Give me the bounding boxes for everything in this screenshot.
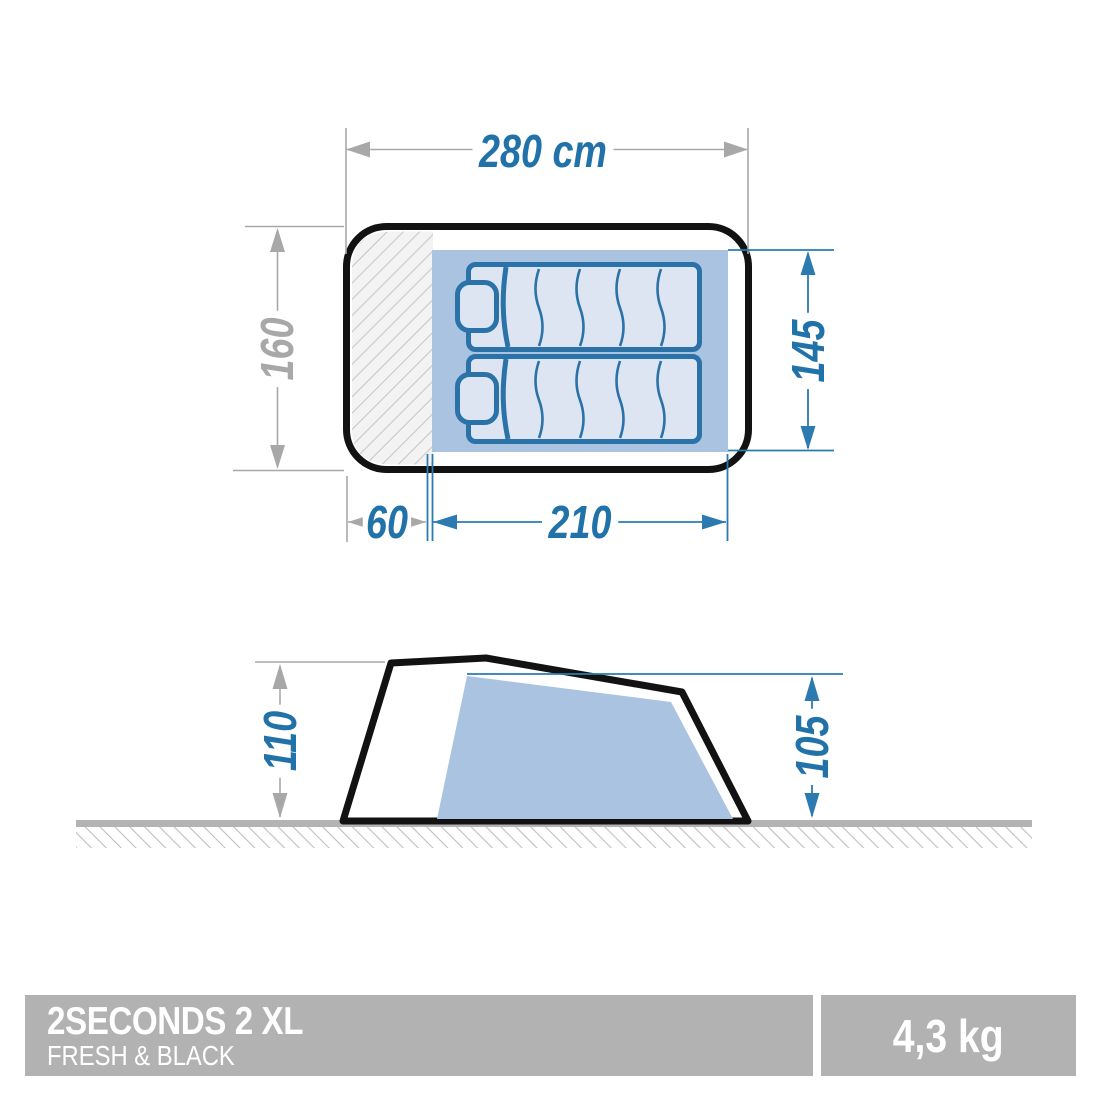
- product-name-bar: 2SECONDS 2 XL FRESH & BLACK: [25, 995, 813, 1076]
- tent-dimensions-diagram: 280 cm 160 145 60 210 110 105 2SECONDS 2…: [0, 0, 1100, 1100]
- label-inner-height: 105: [786, 709, 838, 785]
- label-overall-width: 280 cm: [472, 125, 613, 177]
- ground-hatch: [76, 827, 1032, 848]
- product-weight: 4,3 kg: [893, 1013, 1004, 1059]
- sleeping-bag-2: [458, 357, 700, 442]
- product-weight-bar: 4,3 kg: [821, 995, 1076, 1076]
- label-overall-depth: 160: [251, 311, 303, 387]
- label-outer-height: 110: [254, 704, 306, 777]
- side-view: [76, 658, 1032, 848]
- pillow-2: [458, 375, 497, 423]
- top-view: [233, 128, 834, 542]
- product-range: FRESH & BLACK: [47, 1042, 235, 1070]
- label-bedroom-depth: 145: [782, 313, 834, 389]
- porch-hatched-area: [352, 232, 433, 465]
- label-porch-width: 60: [363, 496, 412, 548]
- pillow-1: [458, 283, 497, 331]
- product-name: 2SECONDS 2 XL: [47, 1002, 303, 1041]
- label-bedroom-width: 210: [542, 496, 618, 548]
- sleeping-bag-1: [458, 265, 700, 350]
